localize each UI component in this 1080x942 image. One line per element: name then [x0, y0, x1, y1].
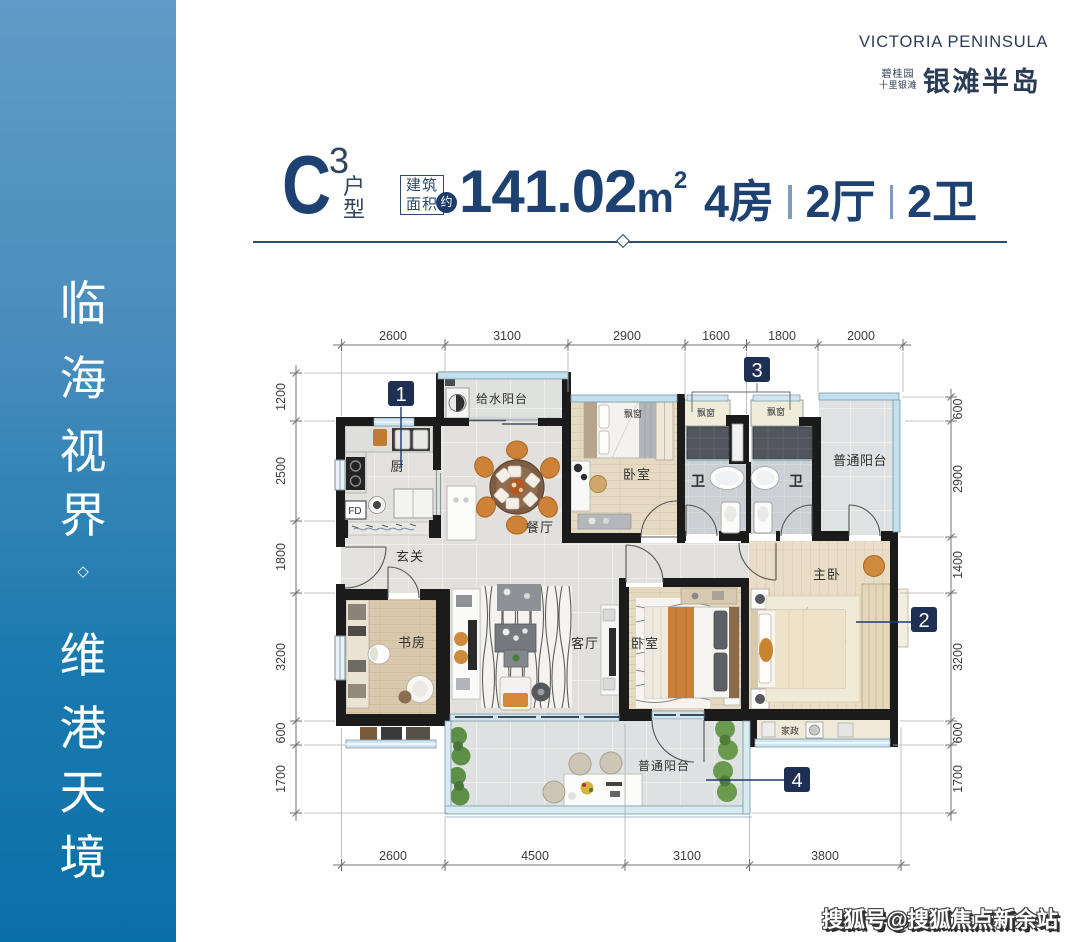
- svg-text:普通阳台: 普通阳台: [833, 453, 887, 468]
- svg-text:1800: 1800: [768, 329, 796, 343]
- svg-text:给水阳台: 给水阳台: [476, 391, 528, 406]
- svg-text:卧室: 卧室: [623, 467, 651, 482]
- svg-text:1: 1: [395, 384, 406, 406]
- svg-text:600: 600: [274, 723, 288, 744]
- svg-text:2900: 2900: [613, 329, 641, 343]
- svg-text:卧室: 卧室: [631, 636, 659, 651]
- svg-text:2000: 2000: [847, 329, 875, 343]
- svg-text:3100: 3100: [673, 849, 701, 863]
- svg-text:卫: 卫: [691, 473, 705, 489]
- svg-text:2500: 2500: [274, 457, 288, 485]
- svg-text:1700: 1700: [951, 765, 965, 793]
- svg-text:600: 600: [951, 399, 965, 420]
- svg-text:1600: 1600: [702, 329, 730, 343]
- svg-text:书房: 书房: [398, 635, 426, 650]
- svg-text:3: 3: [751, 360, 762, 382]
- svg-text:飘窗: 飘窗: [697, 407, 715, 418]
- svg-text:客厅: 客厅: [571, 636, 599, 651]
- svg-text:卫: 卫: [789, 473, 803, 489]
- svg-text:1200: 1200: [274, 383, 288, 411]
- svg-text:1800: 1800: [274, 543, 288, 571]
- svg-text:2600: 2600: [379, 849, 407, 863]
- svg-text:飘窗: 飘窗: [767, 406, 785, 417]
- svg-text:1400: 1400: [951, 551, 965, 579]
- svg-text:餐厅: 餐厅: [526, 520, 554, 535]
- svg-text:4500: 4500: [521, 849, 549, 863]
- svg-text:4: 4: [791, 770, 802, 792]
- svg-text:普通阳台: 普通阳台: [638, 758, 690, 773]
- svg-text:3200: 3200: [274, 643, 288, 671]
- svg-text:FD: FD: [348, 506, 361, 517]
- svg-text:3100: 3100: [493, 329, 521, 343]
- svg-text:3200: 3200: [951, 643, 965, 671]
- svg-text:2: 2: [918, 610, 929, 632]
- svg-text:2900: 2900: [951, 465, 965, 493]
- svg-text:主卧: 主卧: [813, 567, 841, 582]
- svg-text:1700: 1700: [274, 765, 288, 793]
- svg-text:飘窗: 飘窗: [624, 408, 642, 419]
- svg-text:家政: 家政: [781, 725, 799, 736]
- svg-text:600: 600: [951, 723, 965, 744]
- svg-text:玄关: 玄关: [396, 549, 424, 564]
- svg-text:2600: 2600: [379, 329, 407, 343]
- svg-text:3800: 3800: [811, 849, 839, 863]
